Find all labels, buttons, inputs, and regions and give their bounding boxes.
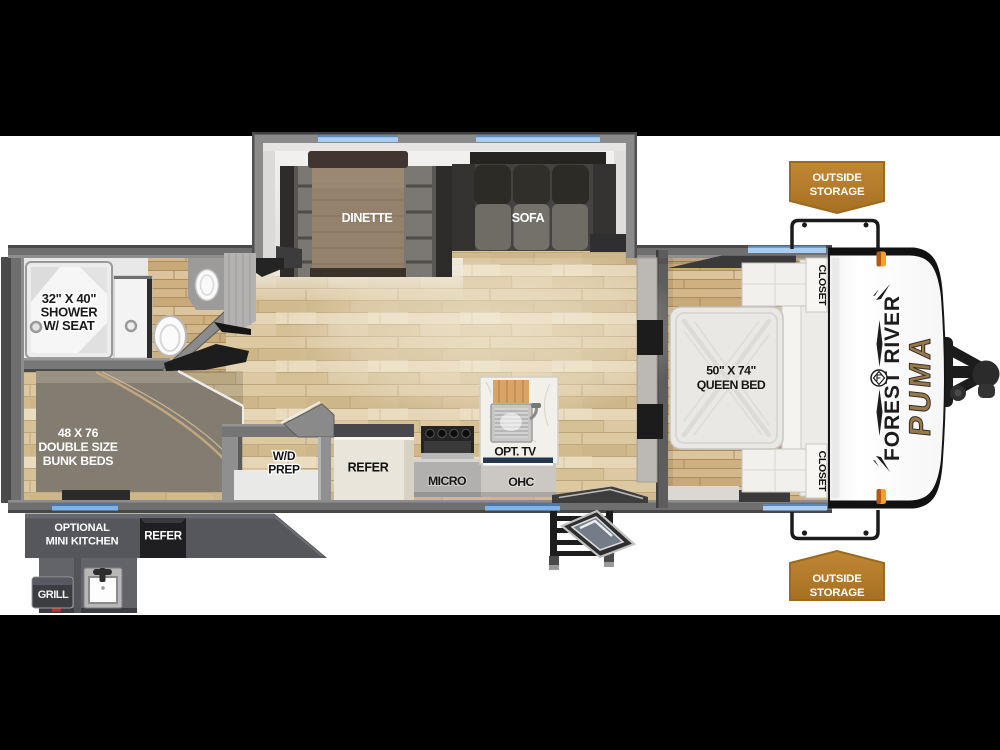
svg-text:QUEEN BED: QUEEN BED bbox=[697, 378, 766, 392]
svg-text:CLOSET: CLOSET bbox=[816, 451, 828, 493]
svg-text:CLOSET: CLOSET bbox=[816, 265, 828, 307]
svg-text:W/D: W/D bbox=[273, 449, 296, 463]
svg-text:DOUBLE SIZE: DOUBLE SIZE bbox=[38, 440, 117, 454]
svg-text:DINETTE: DINETTE bbox=[342, 211, 393, 225]
svg-text:STORAGE: STORAGE bbox=[810, 186, 865, 198]
svg-text:OHC: OHC bbox=[508, 475, 534, 489]
svg-text:BUNK BEDS: BUNK BEDS bbox=[43, 454, 114, 468]
svg-text:REFER: REFER bbox=[144, 531, 182, 543]
svg-text:PUMA: PUMA bbox=[904, 332, 937, 438]
svg-text:OPTIONAL: OPTIONAL bbox=[54, 522, 110, 534]
svg-text:REFER: REFER bbox=[348, 461, 389, 475]
svg-text:48 X 76: 48 X 76 bbox=[58, 426, 99, 440]
svg-text:MICRO: MICRO bbox=[428, 474, 467, 488]
svg-text:OUTSIDE: OUTSIDE bbox=[812, 573, 862, 585]
svg-text:MINI KITCHEN: MINI KITCHEN bbox=[46, 536, 119, 548]
svg-text:PREP: PREP bbox=[268, 463, 300, 477]
svg-text:OUTSIDE: OUTSIDE bbox=[812, 172, 862, 184]
svg-text:STORAGE: STORAGE bbox=[810, 587, 865, 599]
svg-text:W/ SEAT: W/ SEAT bbox=[43, 318, 94, 333]
svg-text:SOFA: SOFA bbox=[512, 211, 545, 225]
svg-text:OPT. TV: OPT. TV bbox=[494, 445, 536, 459]
svg-text:50" X 74": 50" X 74" bbox=[706, 364, 756, 378]
svg-text:GRILL: GRILL bbox=[38, 589, 69, 601]
